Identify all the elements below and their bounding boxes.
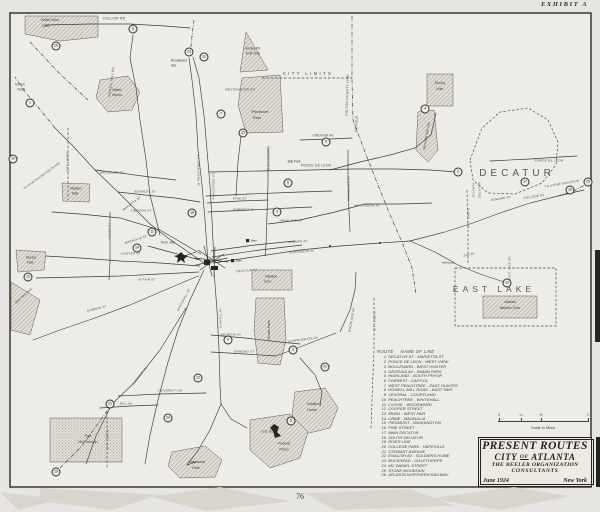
scan-edge-artifact: [596, 437, 600, 487]
scale-tick-label: ½: [539, 413, 542, 417]
route-row: 26ATLANTA NORTHERN RAILWAY: [377, 473, 458, 478]
name-column-header: NAME OF LINE: [401, 349, 435, 354]
route-legend: ROUTE NAME OF LINE 1DECATUR ST - MARIETT…: [377, 349, 458, 478]
scale-caption: Scale in Miles: [497, 425, 589, 430]
route-column-header: ROUTE: [377, 349, 394, 354]
barn-marker: [231, 259, 234, 262]
consultants-line: CONSULTANTS: [479, 468, 591, 474]
scale-bar: 0 ¼ ½ 1 Scale in Miles: [497, 412, 591, 434]
scan-edge-artifact: [595, 250, 600, 342]
fort-mcpherson-area: [50, 418, 122, 462]
map-place: New York: [563, 478, 587, 484]
mozley-park-area: [16, 250, 46, 272]
oakland-cemetery-area: [252, 270, 292, 290]
map-title: PRESENT ROUTES: [479, 440, 591, 452]
athletic-club-area: [483, 296, 537, 318]
organization-line: THE BEELER ORGANIZATION: [479, 462, 591, 468]
downtown-blob: [204, 260, 210, 265]
barn-marker: [246, 239, 249, 242]
maddox-park-area: [62, 183, 90, 202]
title-box-footer: June 1924 New York: [479, 478, 591, 484]
route-legend-header: ROUTE NAME OF LINE: [377, 349, 458, 354]
downtown-blob: [211, 266, 218, 270]
map-date: June 1924: [483, 478, 509, 484]
piedmont-park-area: [238, 75, 283, 133]
route-row-number: 26: [377, 473, 386, 478]
title-box: PRESENT ROUTES CITY OF ATLANTA THE BEELE…: [478, 437, 592, 487]
scale-tick-label: 1: [587, 413, 589, 417]
scale-tick-label: ¼: [519, 413, 522, 417]
emory-univ-area: [427, 74, 453, 106]
scale-tick-label: 0: [498, 413, 500, 417]
scale-bar-line: [498, 421, 589, 422]
route-row-name: ATLANTA NORTHERN RAILWAY: [388, 473, 448, 478]
map-canvas: [0, 0, 600, 512]
scanned-page: { "page": {"exhibit_label": "EXHIBIT A",…: [0, 0, 600, 512]
map-subtitle: CITY OF ATLANTA: [479, 452, 591, 462]
